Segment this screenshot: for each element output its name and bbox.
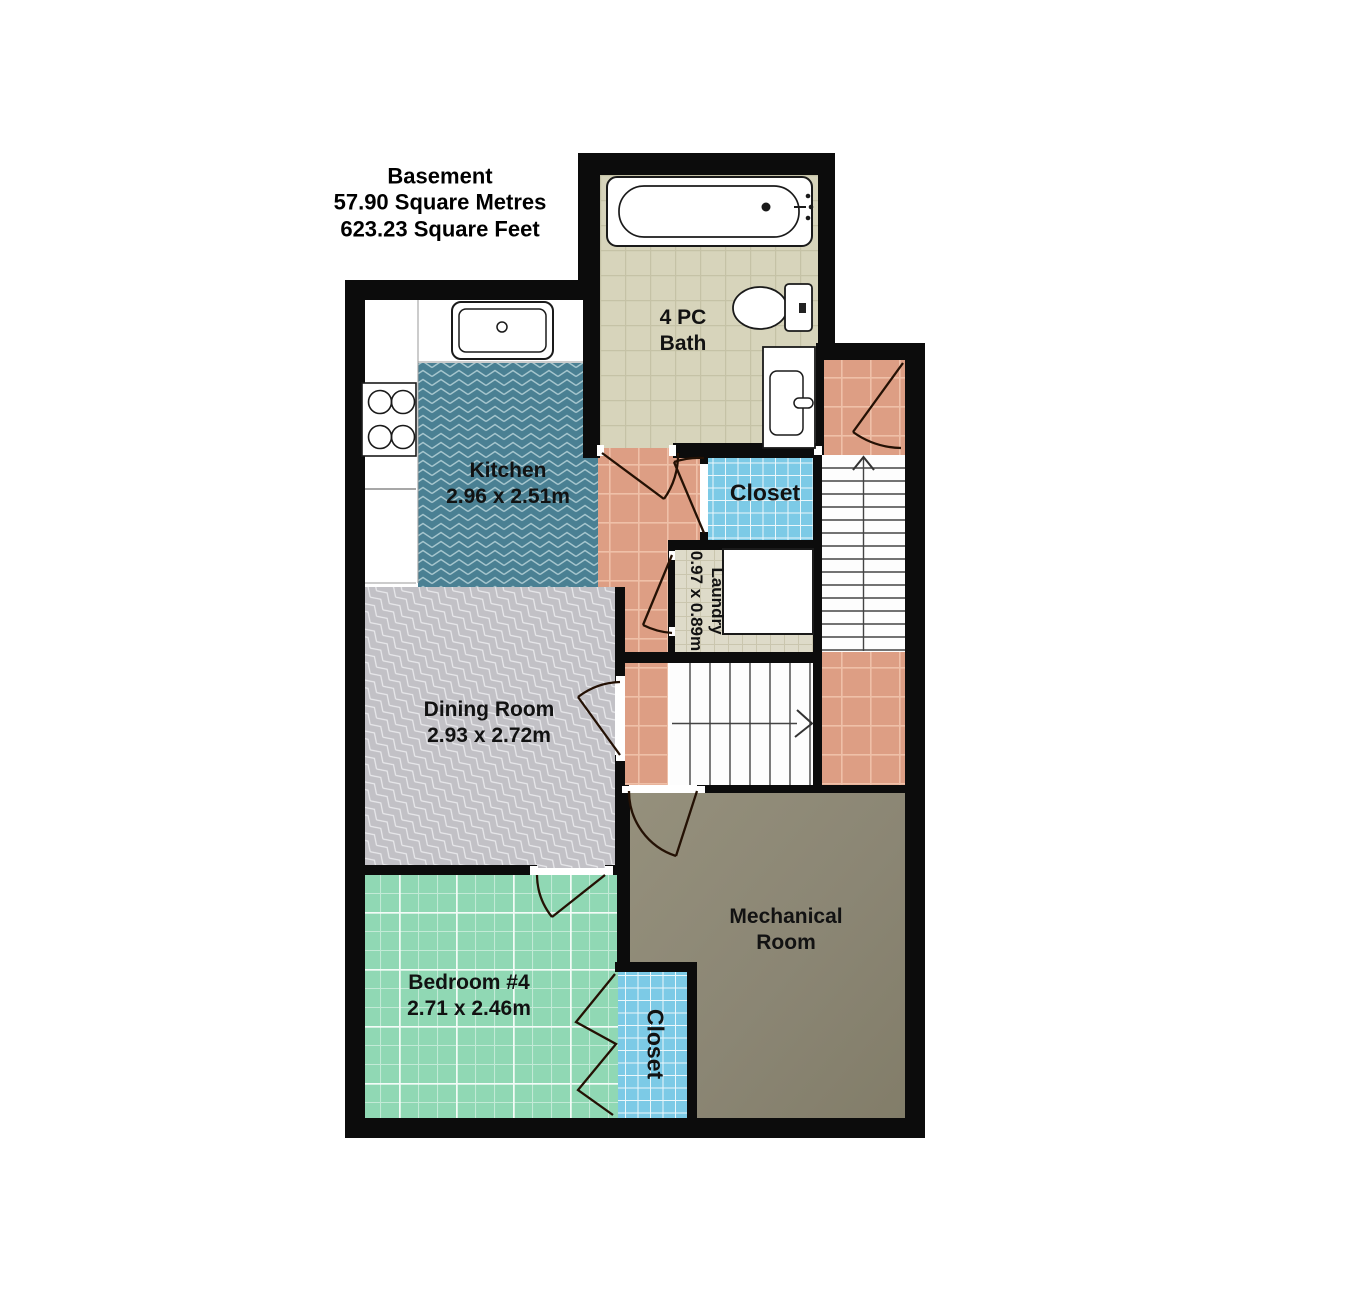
vanity-sink-icon (763, 347, 815, 448)
bathtub-icon (607, 177, 813, 246)
hall-closet-label: Closet (730, 479, 800, 508)
plan-title-line1: Basement (334, 163, 547, 189)
plan-title: Basement 57.90 Square Metres 623.23 Squa… (334, 163, 547, 242)
laundry-label: Laundry 0.97 x 0.89m (686, 551, 728, 651)
bedroom-label: Bedroom #4 2.71 x 2.46m (407, 970, 531, 1022)
plan-title-line2: 57.90 Square Metres (334, 190, 547, 216)
lower-landing-floor (822, 652, 905, 785)
floorplan-svg (0, 0, 1366, 1314)
floorplan-canvas: Basement 57.90 Square Metres 623.23 Squa… (0, 0, 1366, 1314)
stove-icon (362, 383, 416, 456)
kitchen-sink-icon (452, 302, 553, 359)
landing-floor (824, 360, 905, 455)
dining-label: Dining Room 2.93 x 2.72m (424, 697, 555, 749)
hall-floor-mid (598, 550, 668, 587)
washer-icon (723, 549, 813, 634)
hall-floor-upper (598, 448, 700, 550)
bath-label: 4 PC Bath (660, 305, 707, 357)
plan-title-line3: 623.23 Square Feet (334, 216, 547, 242)
toilet-icon (733, 284, 812, 331)
mechanical-label: Mechanical Room (729, 904, 842, 956)
bedroom-closet-label: Closet (641, 1009, 670, 1079)
kitchen-label: Kitchen 2.96 x 2.51m (446, 458, 570, 510)
